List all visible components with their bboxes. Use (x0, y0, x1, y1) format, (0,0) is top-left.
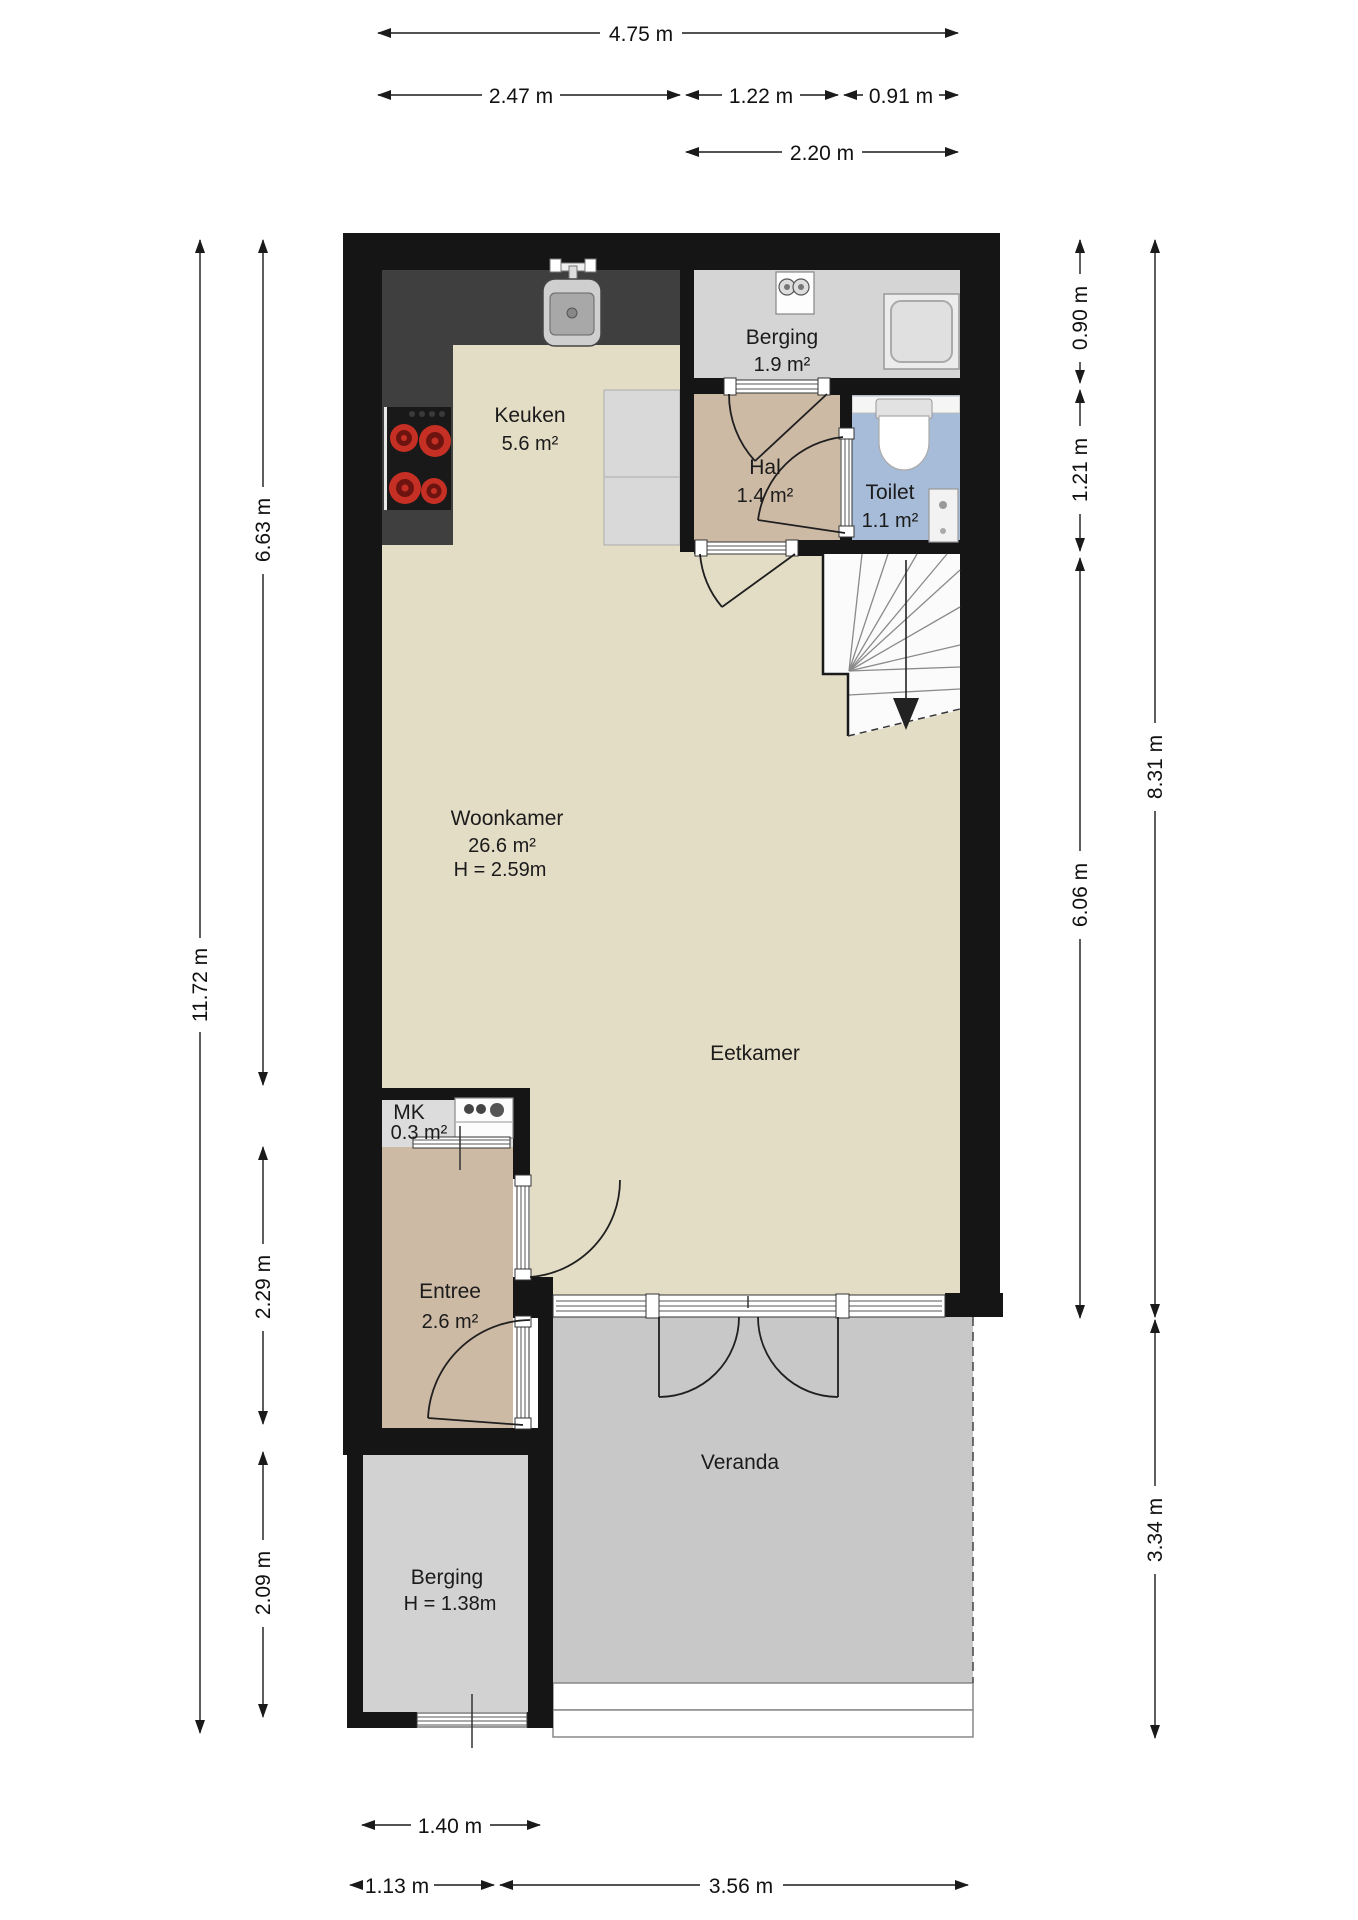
woonkamer-area: 26.6 m² (468, 835, 536, 857)
keuken-area: 5.6 m² (502, 433, 559, 455)
sink-icon (543, 259, 601, 346)
dim-right-outer1: 8.31 m (1144, 240, 1167, 1317)
entree-area: 2.6 m² (422, 1311, 479, 1333)
dim-bottom-row1: 1.40 m (362, 1815, 540, 1838)
berging-beneden-label: Berging (411, 1566, 483, 1589)
dim-top-sub: 2.20 m (686, 142, 958, 165)
berging-beneden-height: H = 1.38m (404, 1593, 497, 1615)
burner (390, 424, 418, 452)
washer-icon (884, 294, 959, 369)
wall-berging2-left (347, 1455, 363, 1728)
wall-top (343, 233, 1000, 270)
wall-front-door-side (538, 1318, 553, 1428)
veranda-step-1 (553, 1683, 973, 1710)
toilet-icon (876, 399, 932, 470)
wall-entree-right-upper (513, 1088, 530, 1179)
svg-text:4.75 m: 4.75 m (609, 23, 673, 46)
wall-entree-right-corner (513, 1277, 553, 1318)
woonkamer-floor-lower (530, 1088, 960, 1297)
dim-top-total: 4.75 m (378, 23, 958, 46)
tap-connection-icon (776, 272, 814, 314)
wall-berging2-bottom-right (527, 1712, 553, 1728)
toilet-area: 1.1 m² (862, 510, 919, 532)
burner (421, 478, 447, 504)
burner (389, 472, 421, 504)
wall-berging2-bottom-left (347, 1712, 417, 1728)
svg-text:11.72 m: 11.72 m (189, 948, 212, 1022)
entree-label: Entree (419, 1280, 481, 1303)
svg-text:1.21 m: 1.21 m (1069, 438, 1092, 502)
svg-text:1.22 m: 1.22 m (729, 85, 793, 108)
mk-label: MK (393, 1101, 425, 1124)
wall-berging-hal-left (694, 378, 727, 394)
wall-berging2-right (528, 1455, 553, 1728)
floorplan-canvas: Keuken 5.6 m² Berging 1.9 m² Hal 1.4 m² … (0, 0, 1358, 1920)
hal-area: 1.4 m² (737, 485, 794, 507)
svg-text:2.47 m: 2.47 m (489, 85, 553, 108)
toilet-label: Toilet (865, 481, 914, 504)
dim-bottom-seg2: 3.56 m (500, 1875, 968, 1898)
dim-right-outer2: 3.34 m (1144, 1320, 1167, 1738)
dim-left-total: 11.72 m (189, 240, 212, 1733)
svg-text:1.13 m: 1.13 m (365, 1875, 429, 1898)
keuken-label: Keuken (494, 404, 565, 427)
veranda-floor (553, 1317, 973, 1683)
hal-label: Hal (749, 456, 781, 479)
wall-kitchen-hal (680, 270, 694, 552)
svg-text:3.34 m: 3.34 m (1144, 1498, 1167, 1562)
svg-text:0.90 m: 0.90 m (1069, 286, 1092, 350)
woonkamer-height: H = 2.59m (454, 859, 547, 881)
dim-bottom-seg1: 1.13 m (350, 1875, 494, 1898)
svg-text:6.63 m: 6.63 m (252, 498, 275, 562)
berging-boven-label: Berging (746, 326, 818, 349)
dim-top-seg2: 1.22 m (686, 85, 838, 108)
svg-text:2.29 m: 2.29 m (252, 1255, 275, 1319)
toilet-sink-icon (929, 489, 958, 542)
wall-hal-toilet-top (840, 392, 852, 432)
dim-top-seg1: 2.47 m (378, 85, 680, 108)
svg-text:1.40 m: 1.40 m (418, 1815, 482, 1838)
meter-panel-icon (455, 1098, 513, 1138)
veranda-step-2 (553, 1710, 973, 1737)
dim-right-inner3: 6.06 m (1069, 558, 1092, 1318)
burner (419, 425, 451, 457)
svg-text:6.06 m: 6.06 m (1069, 863, 1092, 927)
kitchen-counter-top (382, 270, 680, 345)
mk-area: 0.3 m² (391, 1122, 448, 1144)
svg-text:3.56 m: 3.56 m (709, 1875, 773, 1898)
woonkamer-label: Woonkamer (451, 807, 564, 830)
wall-bottom-right-corner (945, 1293, 1003, 1317)
kitchen-cabinet-block (604, 390, 680, 545)
wall-right (960, 270, 1000, 1317)
dim-right-inner2: 1.21 m (1069, 390, 1092, 551)
dim-left-seg3: 2.09 m (252, 1452, 275, 1717)
wall-entree-bottom (343, 1428, 553, 1455)
svg-text:2.20 m: 2.20 m (790, 142, 854, 165)
svg-text:8.31 m: 8.31 m (1144, 735, 1167, 799)
dim-top-seg3: 0.91 m (844, 85, 958, 108)
svg-text:0.91 m: 0.91 m (869, 85, 933, 108)
veranda-label: Veranda (701, 1451, 780, 1474)
dim-right-inner1: 0.90 m (1069, 240, 1092, 383)
dim-left-seg2: 2.29 m (252, 1147, 275, 1424)
wall-left (343, 270, 382, 1455)
dim-left-seg1: 6.63 m (252, 240, 275, 1085)
stove-icon (384, 407, 451, 510)
svg-text:2.09 m: 2.09 m (252, 1551, 275, 1615)
berging-boven-area: 1.9 m² (754, 354, 811, 376)
eetkamer-label: Eetkamer (710, 1042, 800, 1065)
